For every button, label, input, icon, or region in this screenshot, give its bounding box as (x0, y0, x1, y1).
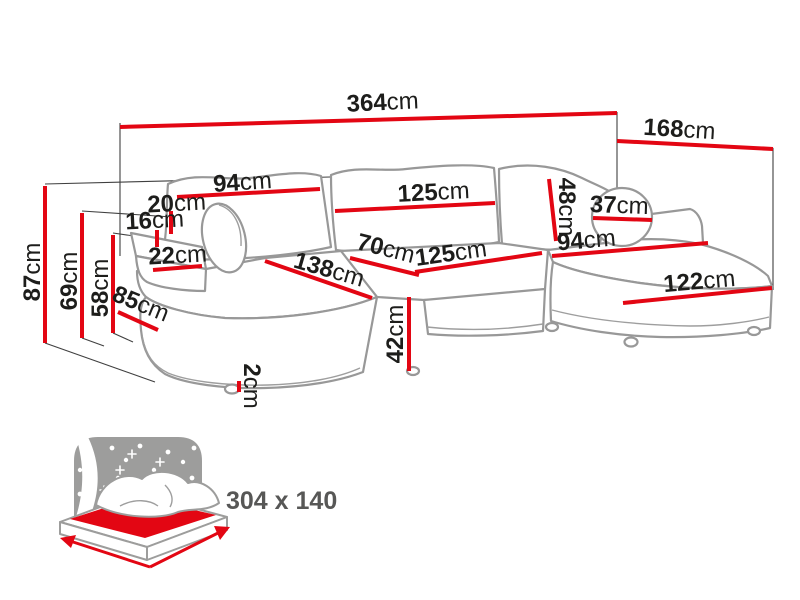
dim-label-seat-back-height: 58cm (87, 259, 114, 318)
dim-label-total-width: 364cm (346, 87, 419, 117)
diagram-canvas: 364cm 168cm 87cm 69cm 58cm 94cm 20cm 16c… (0, 0, 800, 600)
dim-label-seat-height: 42cm (382, 305, 409, 364)
foot (625, 338, 638, 347)
dim-label-bolster-diameter: 37cm (589, 191, 649, 220)
sleeping-function-icon (60, 437, 230, 567)
dim-label-right-seat-width: 94cm (556, 225, 617, 257)
dim-label-back-height: 87cm (19, 243, 46, 302)
sofa-dimension-diagram: 364cm 168cm 87cm 69cm 58cm 94cm 20cm 16c… (0, 0, 800, 600)
dim-label-total-depth: 168cm (643, 114, 717, 145)
dim-label-armrest-front-width: 22cm (148, 240, 208, 270)
guide-floor-stub-2 (113, 333, 133, 342)
guide-floor-stub-1 (82, 338, 104, 346)
foot (225, 385, 239, 394)
sleeping-size-label: 304 x 140 (226, 487, 337, 515)
dim-label-armrest-top-width: 16cm (125, 205, 185, 235)
foot (546, 323, 558, 331)
guide-floor-diagonal (45, 343, 155, 382)
dim-label-leg-height: 2cm (238, 363, 265, 408)
dim-label-armrest-height: 69cm (56, 252, 83, 311)
dim-label-middle-back-cushion: 125cm (397, 177, 470, 208)
dim-label-left-back-cushion: 94cm (212, 167, 272, 198)
foot (748, 327, 760, 335)
